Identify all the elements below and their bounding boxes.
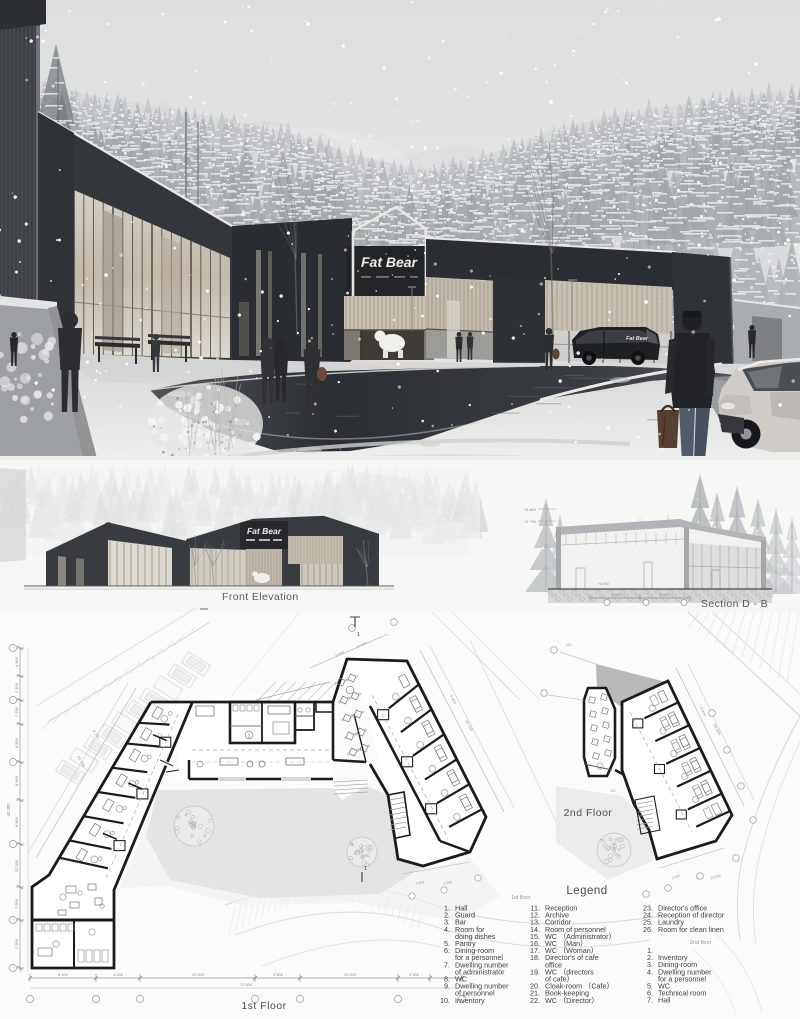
svg-text:4.: 4. xyxy=(444,925,450,934)
svg-text:Fat Bear: Fat Bear xyxy=(247,526,282,536)
svg-text:6 900: 6 900 xyxy=(14,775,19,786)
svg-text:Inventory: Inventory xyxy=(455,996,485,1005)
svg-text:Fat Bear: Fat Bear xyxy=(361,254,419,270)
svg-text:2nd floor: 2nd floor xyxy=(690,940,712,946)
svg-text:Legend: Legend xyxy=(566,885,607,897)
svg-text:Section D - B: Section D - B xyxy=(701,598,768,610)
svg-text:1st Floor: 1st Floor xyxy=(241,1000,286,1012)
svg-text:110: 110 xyxy=(610,789,616,793)
svg-text:4 000: 4 000 xyxy=(113,972,124,977)
svg-text:72 500: 72 500 xyxy=(240,982,253,987)
svg-text:Hall: Hall xyxy=(658,996,671,1005)
svg-text:4.: 4. xyxy=(647,967,653,976)
svg-text:18.: 18. xyxy=(530,953,540,962)
svg-text:12 500: 12 500 xyxy=(192,972,205,977)
svg-text:2 500: 2 500 xyxy=(14,938,19,949)
svg-text:6.: 6. xyxy=(444,946,450,955)
svg-text:22.: 22. xyxy=(530,996,540,1005)
svg-text:1: 1 xyxy=(248,734,251,740)
svg-text:3 600: 3 600 xyxy=(273,972,284,977)
svg-text:26.: 26. xyxy=(643,925,653,934)
svg-text:19.: 19. xyxy=(530,967,540,976)
svg-text:7.: 7. xyxy=(444,960,450,969)
svg-text:110: 110 xyxy=(566,643,572,647)
svg-text:Front Elevation: Front Elevation xyxy=(222,591,299,603)
svg-text:1: 1 xyxy=(357,632,360,638)
svg-text:1st floor: 1st floor xyxy=(511,895,531,901)
svg-text:+5.800: +5.800 xyxy=(524,507,537,512)
svg-text:7.: 7. xyxy=(647,996,653,1005)
svg-text:7 500: 7 500 xyxy=(14,898,19,909)
svg-text:8 500: 8 500 xyxy=(14,816,19,827)
svg-text:7 150: 7 150 xyxy=(14,706,19,717)
svg-text:+0.000: +0.000 xyxy=(598,582,609,586)
svg-text:22 500: 22 500 xyxy=(14,859,19,872)
svg-text:9.: 9. xyxy=(444,982,450,991)
svg-text:4 500: 4 500 xyxy=(14,656,19,667)
svg-text:3 500: 3 500 xyxy=(409,972,420,977)
svg-text:+2.790: +2.790 xyxy=(524,519,537,524)
svg-text:2nd Floor: 2nd Floor xyxy=(564,807,613,819)
svg-text:8 100: 8 100 xyxy=(58,972,69,977)
svg-text:Room for clean linen: Room for clean linen xyxy=(658,925,724,934)
svg-text:WC （Director）: WC （Director） xyxy=(545,996,599,1005)
svg-text:10.: 10. xyxy=(440,996,450,1005)
svg-text:6 000: 6 000 xyxy=(612,592,623,597)
svg-text:9 000: 9 000 xyxy=(660,592,671,597)
svg-text:8 500: 8 500 xyxy=(14,737,19,748)
svg-text:10 500: 10 500 xyxy=(344,972,357,977)
svg-text:40 300: 40 300 xyxy=(6,803,11,816)
svg-text:2 100: 2 100 xyxy=(14,682,19,693)
svg-text:Fat Bear: Fat Bear xyxy=(626,336,649,342)
svg-text:1: 1 xyxy=(364,866,367,872)
